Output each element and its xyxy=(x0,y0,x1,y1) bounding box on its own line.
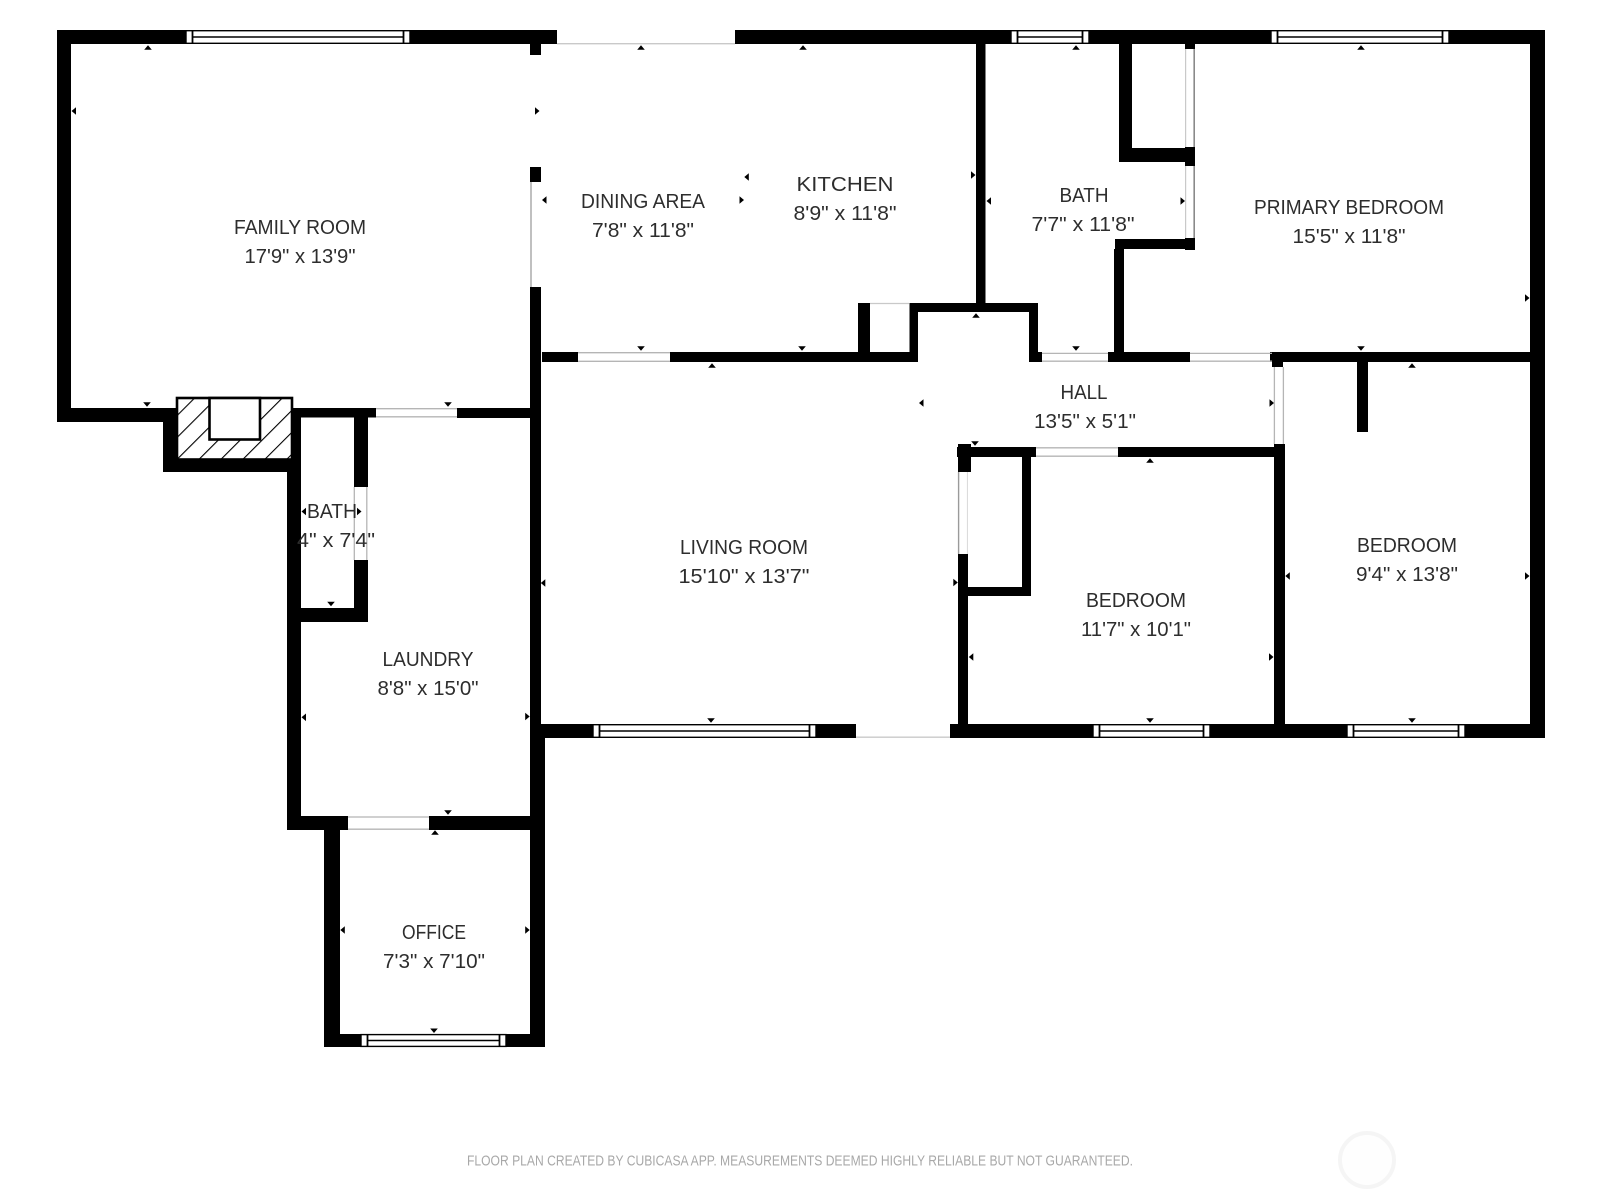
svg-text:LIVING ROOM: LIVING ROOM xyxy=(680,536,808,559)
svg-text:7'3" x 7'10": 7'3" x 7'10" xyxy=(383,951,485,973)
svg-text:9'4" x 13'8": 9'4" x 13'8" xyxy=(1356,564,1458,586)
svg-text:FAMILY ROOM: FAMILY ROOM xyxy=(234,216,366,239)
svg-text:13'5" x 5'1": 13'5" x 5'1" xyxy=(1034,411,1136,433)
svg-text:8'9" x 11'8": 8'9" x 11'8" xyxy=(794,203,897,225)
svg-text:BEDROOM: BEDROOM xyxy=(1357,534,1457,557)
svg-text:15'5" x 11'8": 15'5" x 11'8" xyxy=(1293,226,1406,248)
svg-text:BEDROOM: BEDROOM xyxy=(1086,589,1186,612)
svg-text:FLOOR PLAN CREATED BY CUBICASA: FLOOR PLAN CREATED BY CUBICASA APP. MEAS… xyxy=(467,1153,1133,1170)
svg-text:17'9" x 13'9": 17'9" x 13'9" xyxy=(245,246,356,268)
svg-text:PRIMARY BEDROOM: PRIMARY BEDROOM xyxy=(1254,196,1444,219)
svg-text:DINING AREA: DINING AREA xyxy=(581,190,705,213)
svg-text:LAUNDRY: LAUNDRY xyxy=(383,648,474,671)
svg-text:7'7" x 11'8": 7'7" x 11'8" xyxy=(1032,214,1135,236)
svg-text:15'10" x 13'7": 15'10" x 13'7" xyxy=(679,566,810,588)
svg-text:7'8" x 11'8": 7'8" x 11'8" xyxy=(592,220,694,242)
svg-text:BATH: BATH xyxy=(1060,184,1109,207)
svg-text:4" x 7'4": 4" x 7'4" xyxy=(297,530,375,552)
svg-text:HALL: HALL xyxy=(1061,381,1108,404)
svg-text:OFFICE: OFFICE xyxy=(402,921,466,944)
svg-text:8'8" x 15'0": 8'8" x 15'0" xyxy=(378,678,479,700)
svg-text:11'7" x 10'1": 11'7" x 10'1" xyxy=(1081,619,1191,641)
svg-text:KITCHEN: KITCHEN xyxy=(797,173,894,196)
svg-text:BATH: BATH xyxy=(307,500,357,523)
